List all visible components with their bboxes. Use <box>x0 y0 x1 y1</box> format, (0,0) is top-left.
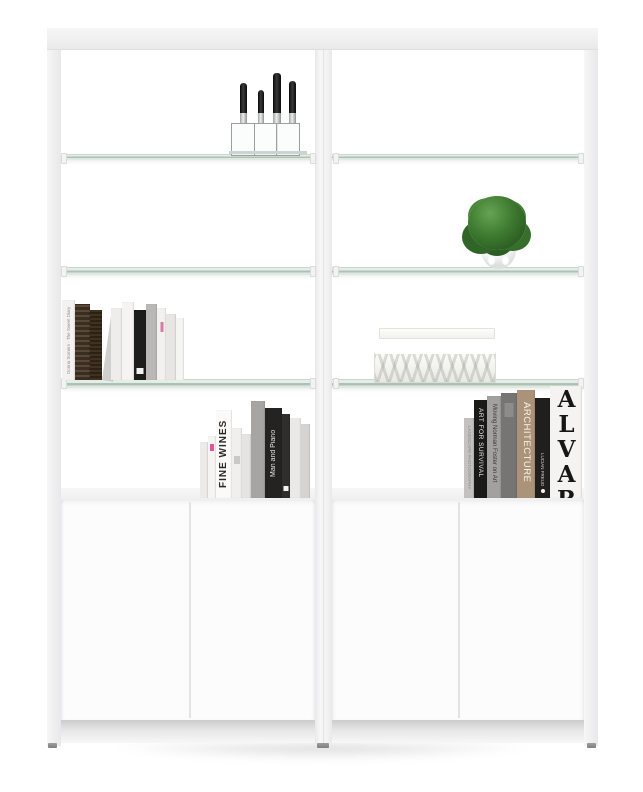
shelf-clip <box>333 378 339 389</box>
book-spine: LUCIAN FREUD <box>535 398 550 498</box>
book-spine <box>75 304 90 380</box>
book-title: LUCIAN FREUD <box>535 398 550 498</box>
shelf-clip <box>578 153 584 164</box>
glass-shelf-right-top <box>332 154 583 160</box>
cabinet-right-base-recess <box>332 720 584 743</box>
book-spine <box>122 302 134 380</box>
leg-foot <box>587 743 596 748</box>
glass-shelf-right-middle <box>332 267 583 275</box>
knife-block <box>231 62 307 154</box>
cabinet-left-base-recess <box>61 720 315 743</box>
shelf-clip <box>310 378 316 389</box>
book-spine: ART FOR SURVIVAL <box>474 400 487 498</box>
book-spine: ALVAR <box>550 386 582 498</box>
book-spine <box>242 434 251 498</box>
shelf-clip <box>310 266 316 277</box>
book-spine <box>90 310 102 380</box>
book-spine: Man and Piano <box>265 408 282 498</box>
book-spine <box>157 308 166 380</box>
storage-boxes <box>372 326 498 380</box>
book-spine: Donna Somers · The Sweet Diary <box>62 300 75 380</box>
book-title: ART FOR SURVIVAL <box>474 400 487 498</box>
knife <box>273 73 281 124</box>
book-spine <box>166 314 176 380</box>
book-title: ARCHITECTURE <box>517 390 535 498</box>
book-spine: ARCHITECTURE <box>517 390 535 498</box>
plant-foliage <box>468 196 526 250</box>
book-spine <box>282 414 290 498</box>
book-spine <box>208 436 216 498</box>
books-left-cabinet-top: FINE WINES Man and Piano <box>200 401 310 498</box>
book-title: Man and Piano <box>265 408 282 498</box>
shelf-clip <box>333 266 339 277</box>
storage-box-lid <box>379 328 495 339</box>
book-spine: FINE WINES <box>216 410 232 498</box>
shelf-clip <box>61 266 67 277</box>
book-title: LANDSCAPE PHOTOGRAPHY <box>464 418 474 498</box>
book-spine <box>176 318 184 380</box>
books-right-cabinet-top: LANDSCAPE PHOTOGRAPHY ART FOR SURVIVAL M… <box>464 386 582 498</box>
shelf-clip <box>310 153 316 164</box>
frame-post-right <box>584 28 598 746</box>
book-spine <box>111 308 122 380</box>
book-spine <box>501 393 517 498</box>
knife <box>240 83 247 124</box>
cabinet-right-door-seam <box>458 502 460 718</box>
book-spine <box>301 424 310 498</box>
frame-top-rail <box>47 28 598 50</box>
book-spine <box>232 428 242 498</box>
book-title: Moving Norman Foster on Art <box>487 396 501 498</box>
book-spine <box>290 418 301 498</box>
book-title: Donna Somers · The Sweet Diary <box>62 300 75 380</box>
potted-plant <box>466 196 528 269</box>
cabinet-left-doors <box>61 500 315 720</box>
knife <box>289 81 296 124</box>
frame-center-seam <box>323 28 324 746</box>
book-spine: LANDSCAPE PHOTOGRAPHY <box>464 418 474 498</box>
shelving-unit-photo: Donna Somers · The Sweet Diary FINE WINE… <box>0 0 643 792</box>
knife-block-base <box>229 151 307 154</box>
book-spine <box>134 310 146 380</box>
frame-post-left <box>47 28 61 746</box>
book-title: ALVAR <box>550 386 582 498</box>
leg-foot <box>48 743 57 748</box>
leg-foot <box>317 743 329 748</box>
knife <box>258 90 264 124</box>
book-title: FINE WINES <box>216 410 232 498</box>
book-spine: Moving Norman Foster on Art <box>487 396 501 498</box>
glass-shelf-left-bottom <box>62 379 315 388</box>
book-spine <box>200 442 208 498</box>
books-left-shelf: Donna Somers · The Sweet Diary <box>62 296 184 380</box>
glass-shelf-left-middle <box>62 267 315 275</box>
storage-box-bottom <box>374 352 496 383</box>
shelf-clip <box>578 266 584 277</box>
book-spine <box>146 304 157 380</box>
cabinet-left-door-seam <box>189 502 191 718</box>
book-spine <box>251 401 265 498</box>
shelf-clip <box>333 153 339 164</box>
shelf-clip <box>61 153 67 164</box>
